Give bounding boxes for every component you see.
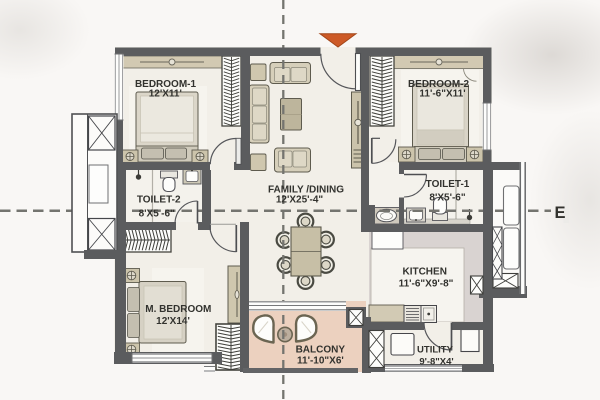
svg-text:11'-6"X9'-8": 11'-6"X9'-8" (399, 279, 454, 290)
svg-text:12'X14': 12'X14' (156, 316, 190, 327)
svg-text:TOILET-2: TOILET-2 (137, 195, 181, 206)
svg-text:8'X5'-6": 8'X5'-6" (429, 193, 465, 204)
svg-text:8'X5'-6": 8'X5'-6" (139, 209, 175, 220)
svg-text:12'X11': 12'X11' (149, 89, 182, 100)
svg-text:M. BEDROOM: M. BEDROOM (145, 304, 211, 315)
svg-text:E: E (554, 204, 565, 222)
svg-text:9'-8"X4': 9'-8"X4' (419, 357, 453, 368)
svg-text:12'X25'-4": 12'X25'-4" (276, 195, 324, 206)
svg-text:BALCONY: BALCONY (296, 345, 346, 356)
svg-text:11'-6"X11': 11'-6"X11' (419, 89, 465, 100)
svg-text:11'-10"X6': 11'-10"X6' (297, 356, 344, 367)
svg-text:TOILET-1: TOILET-1 (426, 179, 470, 190)
svg-text:KITCHEN: KITCHEN (402, 267, 446, 278)
svg-text:UTILITY: UTILITY (417, 345, 454, 356)
